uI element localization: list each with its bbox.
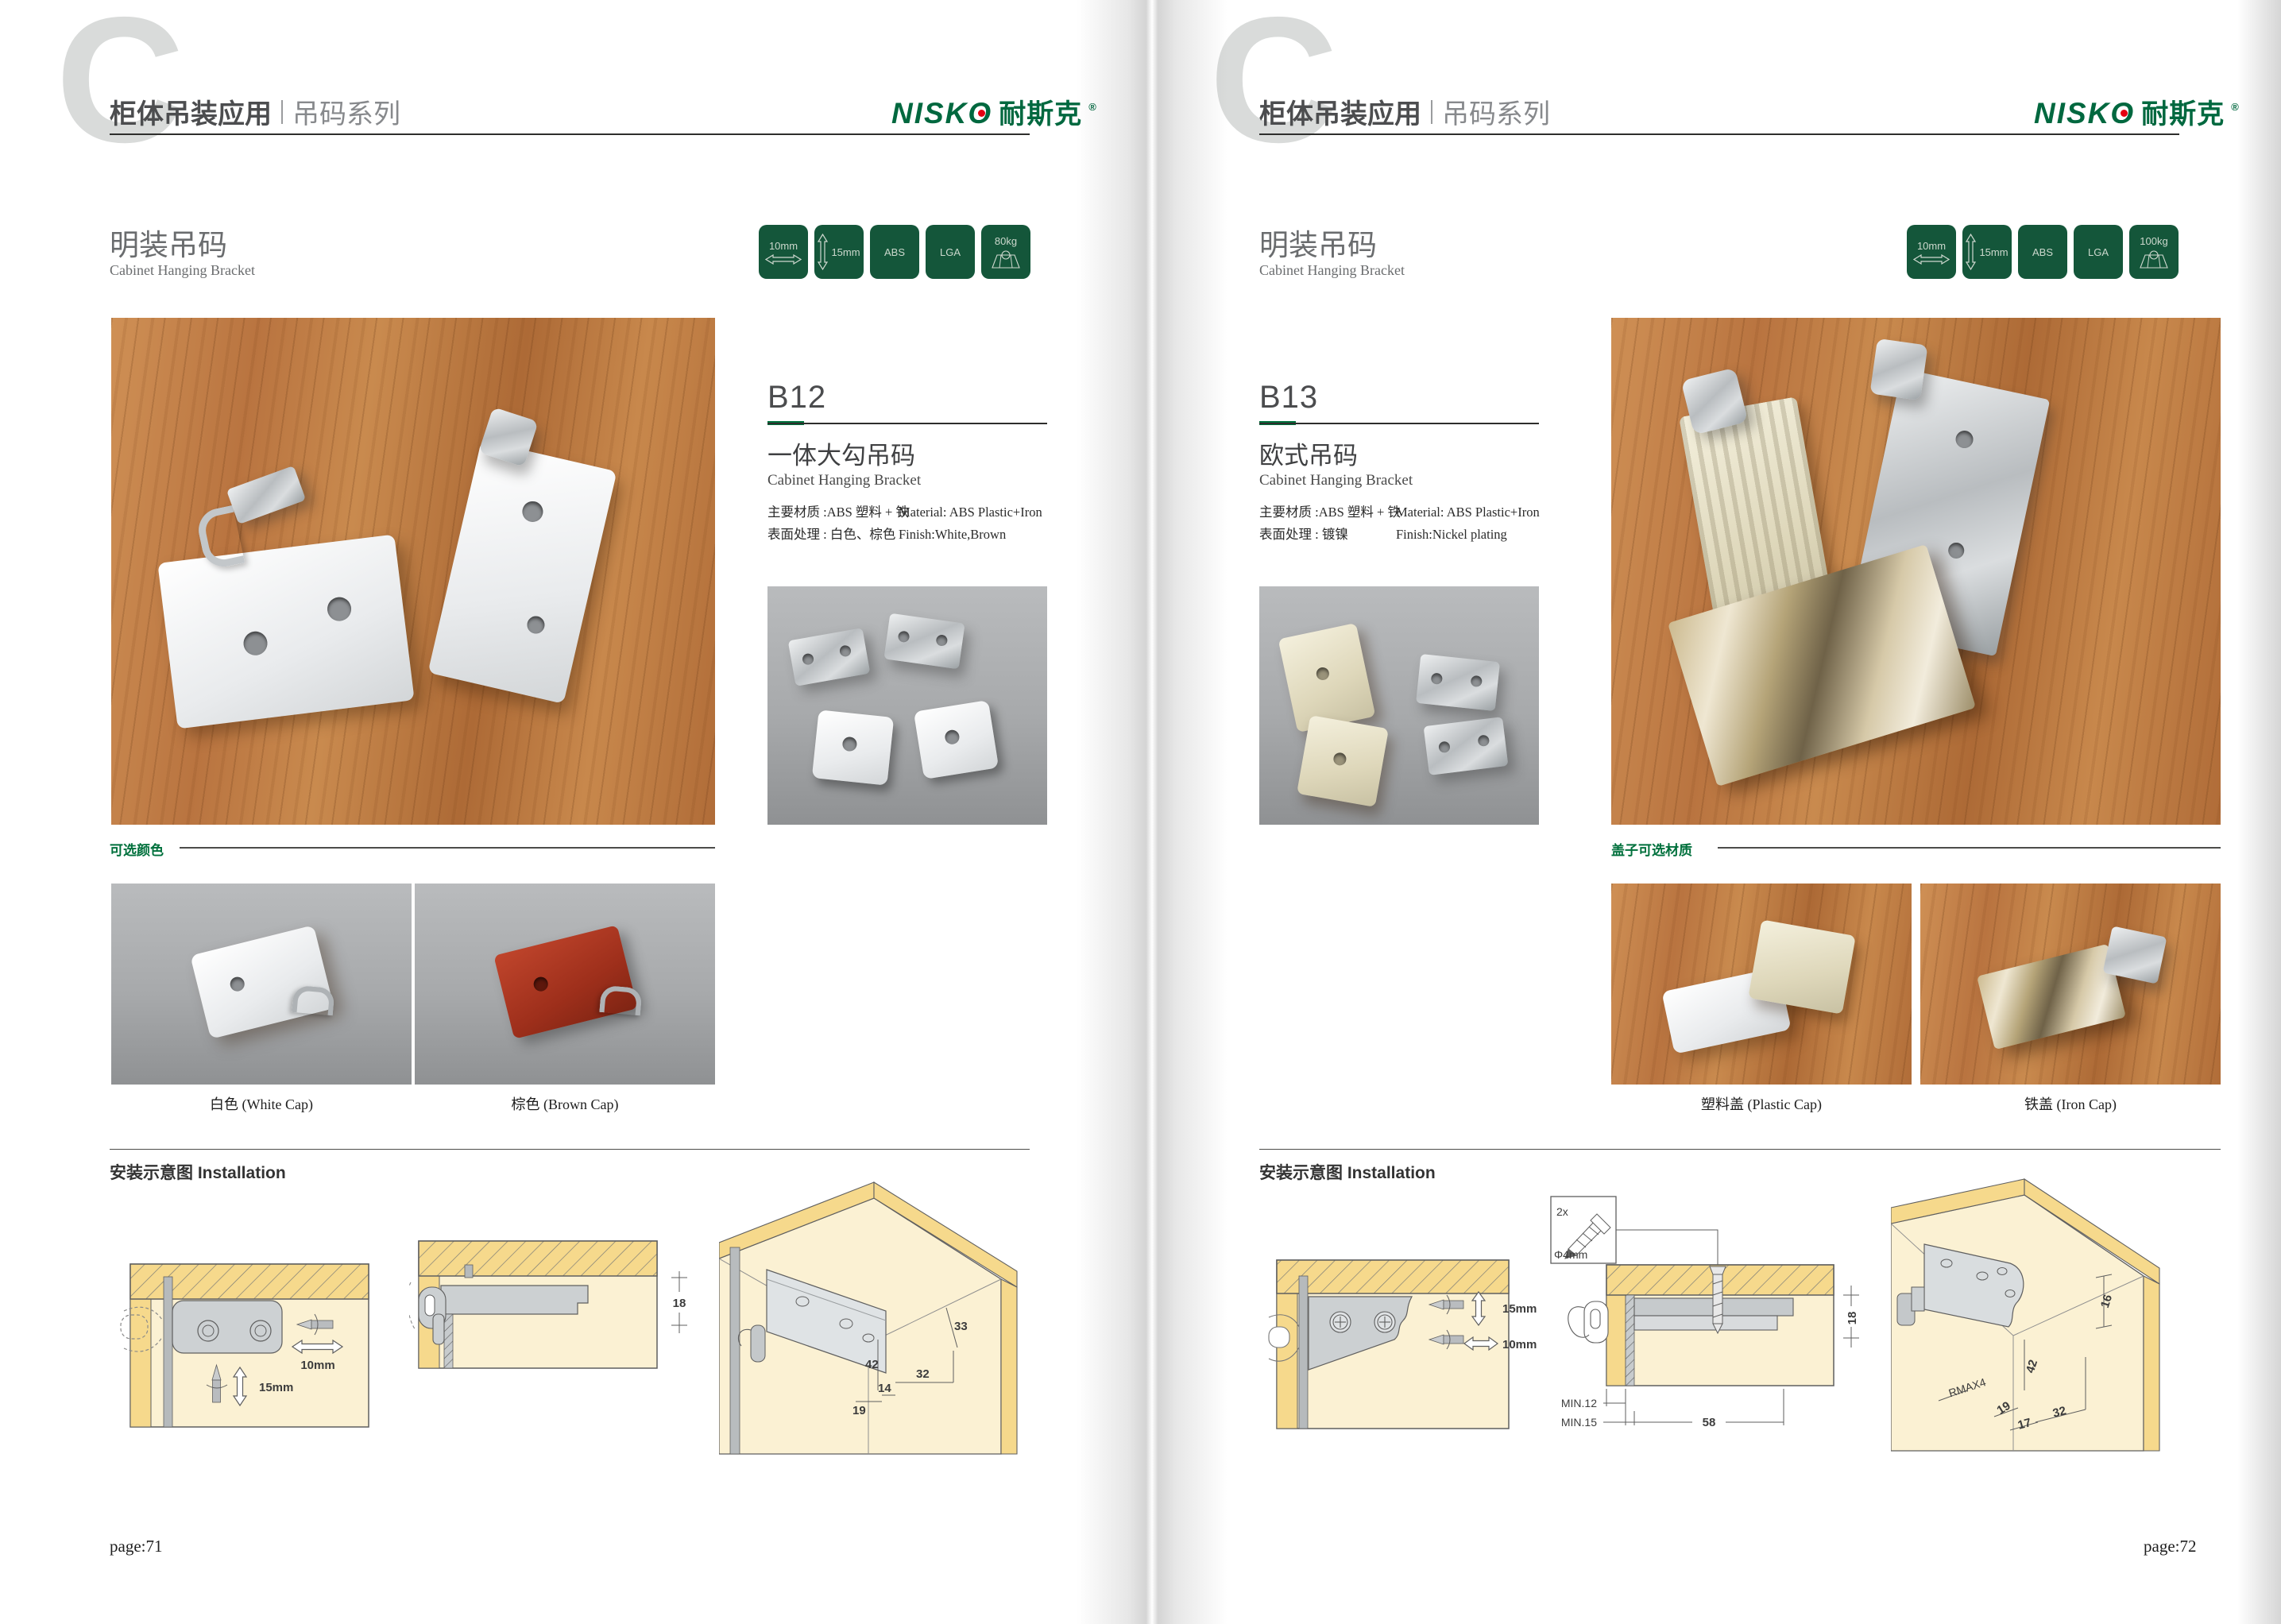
- brand-logo: NISKO 耐斯克 ®: [891, 92, 1096, 131]
- brand-logo-text: NISKO: [891, 97, 992, 130]
- product-spec-finish-cn: 表面处理 : 镀镍: [1259, 523, 1348, 546]
- option-photo-white: [111, 884, 412, 1085]
- badge-width-label: 10mm: [769, 240, 798, 252]
- page-number: page:72: [2144, 1537, 2196, 1556]
- options-label: 可选颜色: [110, 839, 164, 859]
- badge-height: 15mm: [814, 225, 864, 279]
- installation-label: 安装示意图 Installation: [110, 1160, 286, 1184]
- options-rule: [180, 847, 715, 849]
- dim-label: 15mm: [259, 1381, 293, 1394]
- spec-badge-row: 10mm 15mm ABS LGA 100kg: [1907, 225, 2179, 279]
- header-subtitle: 吊码系列: [1442, 92, 1550, 131]
- spec-badge-row: 10mm 15mm ABS LGA 80kg: [759, 225, 1030, 279]
- product-rule: [767, 421, 1047, 425]
- badge-material-label: ABS: [2032, 246, 2053, 258]
- screw-qty-label: 2x: [1556, 1205, 1568, 1218]
- product-rule: [1259, 421, 1539, 425]
- iron-cap-box: [1977, 944, 2126, 1050]
- page-number: page:71: [110, 1537, 162, 1556]
- brand-logo-text: NISKO: [2034, 97, 2135, 130]
- dim-label: 10mm: [1502, 1338, 1537, 1351]
- width-arrow-icon: [1913, 254, 1950, 265]
- option-caption: 铁盖 (Iron Cap): [1920, 1093, 2221, 1114]
- height-arrow-icon: [1966, 234, 1976, 270]
- installation-rule: [110, 1149, 1030, 1150]
- installation-diagram-1: 15mm 10mm: [1267, 1238, 1561, 1440]
- wall-rail: [730, 1247, 740, 1454]
- plastic-bracket: [1297, 715, 1389, 807]
- dim-label: MIN.12: [1561, 1397, 1597, 1409]
- page-header-title: 柜体吊装应用 吊码系列: [110, 92, 400, 131]
- product-spec-finish-en: Finish:White,Brown: [899, 523, 1006, 546]
- section-title-en: Cabinet Hanging Bracket: [110, 262, 255, 279]
- rail-lower: [1634, 1316, 1777, 1330]
- badge-certification: LGA: [2074, 225, 2123, 279]
- wall-rail: [1299, 1276, 1308, 1429]
- screw-diameter-label: Φ4mm: [1554, 1248, 1587, 1261]
- page-right: C 柜体吊装应用 吊码系列 NISKO 耐斯克 ® 明装吊码 Cabinet H…: [1140, 0, 2281, 1624]
- product-piece-bracket-standing: [428, 440, 617, 704]
- book-gutter-shadow: [1077, 0, 1227, 1624]
- header-rule: [110, 133, 1030, 135]
- installation-diagram-3: 16 42 RMAX4 19 17 32: [1891, 1174, 2233, 1472]
- white-cap-bracket: [190, 925, 334, 1038]
- brand-logo-latin: NISKO: [2034, 97, 2135, 130]
- section-title-en: Cabinet Hanging Bracket: [1259, 262, 1405, 279]
- dim-label: 18: [1846, 1312, 1859, 1325]
- badge-material-label: ABS: [884, 246, 905, 258]
- hook-bracket: [914, 700, 999, 779]
- rail-plate: [1416, 654, 1500, 711]
- page-edge-shadow: [2237, 0, 2281, 1624]
- product-spec-material-cn: 主要材质 :ABS 塑料 + 铁: [1259, 501, 1401, 524]
- rail-bar: [441, 1286, 588, 1314]
- badge-width-label: 10mm: [1917, 240, 1946, 252]
- product-code: B12: [767, 380, 826, 416]
- badge-load-label: 80kg: [995, 235, 1017, 247]
- dim-label: 32: [916, 1367, 930, 1381]
- brand-logo-cn: 耐斯克: [999, 92, 1082, 131]
- wall-rail: [164, 1277, 172, 1427]
- header-rule: [1259, 133, 2179, 135]
- page-header-title: 柜体吊装应用 吊码系列: [1259, 92, 1550, 131]
- product-spec-material-cn: 主要材质 :ABS 塑料 + 铁: [767, 501, 909, 524]
- badge-load-label: 100kg: [2140, 235, 2167, 247]
- installation-rule: [1259, 1149, 2221, 1150]
- options-label: 盖子可选材质: [1611, 839, 1692, 859]
- badge-material: ABS: [2018, 225, 2067, 279]
- badge-width: 10mm: [1907, 225, 1956, 279]
- catalog-spread: C 柜体吊装应用 吊码系列 NISKO 耐斯克 ® 明装吊码 Cabinet H…: [0, 0, 2281, 1624]
- badge-certification-label: LGA: [2088, 246, 2109, 258]
- metal-clip-piece: [226, 466, 306, 524]
- installation-diagram-1: 10mm 15mm: [119, 1235, 389, 1438]
- detail-photo: [1259, 586, 1539, 825]
- header-divider: [1431, 100, 1432, 124]
- main-product-photo: [111, 318, 715, 825]
- badge-load: 100kg: [2129, 225, 2179, 279]
- detail-photo: [767, 586, 1047, 825]
- header-subtitle: 吊码系列: [292, 92, 400, 131]
- metal-hook-icon: [599, 985, 643, 1016]
- product-code: B13: [1259, 380, 1318, 416]
- dim-label: 14: [878, 1382, 891, 1395]
- product-spec-finish-en: Finish:Nickel plating: [1396, 523, 1507, 546]
- product-name-en: Cabinet Hanging Bracket: [767, 472, 921, 489]
- installation-diagram-3: 33 42 32 19 14: [719, 1174, 1073, 1504]
- option-photo-iron: [1920, 884, 2221, 1085]
- header-divider: [281, 100, 283, 124]
- dim-label: 15mm: [1502, 1302, 1537, 1316]
- screw-callout-box: 2x Φ4mm: [1551, 1197, 1616, 1263]
- product-rule-line: [767, 423, 1047, 424]
- dim-label: 42: [865, 1358, 879, 1371]
- brown-cap-bracket: [493, 925, 637, 1038]
- brand-logo-cn: 耐斯克: [2141, 92, 2225, 131]
- option-caption: 塑料盖 (Plastic Cap): [1611, 1093, 1912, 1114]
- brand-logo-latin: NISKO: [891, 97, 992, 130]
- badge-certification: LGA: [926, 225, 975, 279]
- section-title-cn: 明装吊码: [1259, 221, 1377, 264]
- dim-label: 10mm: [300, 1359, 334, 1372]
- rail-plate: [788, 628, 871, 686]
- chapter-letter-watermark: C: [56, 0, 180, 169]
- header-title-cn: 柜体吊装应用: [110, 92, 272, 131]
- badge-certification-label: LGA: [940, 246, 961, 258]
- rail-plate: [883, 613, 965, 670]
- product-spec-finish-cn: 表面处理 : 白色、棕色: [767, 523, 895, 546]
- brand-logo: NISKO 耐斯克 ®: [2034, 92, 2239, 131]
- height-arrow-icon: [818, 234, 828, 270]
- bottom-dim-lines: [1603, 1389, 1784, 1425]
- product-name-en: Cabinet Hanging Bracket: [1259, 472, 1413, 489]
- option-photo-brown: [415, 884, 715, 1085]
- dim-label: MIN.15: [1561, 1416, 1597, 1429]
- options-rule: [1718, 847, 2221, 849]
- product-piece-bracket-flat: [157, 535, 414, 729]
- badge-height: 15mm: [1962, 225, 2012, 279]
- metal-hook-icon: [1869, 338, 1927, 400]
- load-cabinet-icon: [989, 249, 1023, 269]
- badge-height-label: 15mm: [831, 246, 860, 258]
- installation-label: 安装示意图 Installation: [1259, 1160, 1436, 1184]
- load-cabinet-icon: [2137, 249, 2171, 269]
- option-caption: 白色 (White Cap): [111, 1093, 412, 1114]
- hook-body: [1568, 1301, 1608, 1343]
- header-title-cn: 柜体吊装应用: [1259, 92, 1421, 131]
- product-name-cn: 一体大勾吊码: [767, 435, 915, 471]
- badge-material: ABS: [870, 225, 919, 279]
- plastic-bracket: [1278, 623, 1376, 733]
- callout-line: [1616, 1230, 1718, 1270]
- product-spec-material-en: Material: ABS Plastic+Iron: [899, 501, 1042, 524]
- dim-label: 33: [954, 1320, 968, 1333]
- dim-label: 58: [1703, 1416, 1716, 1429]
- badge-load: 80kg: [981, 225, 1030, 279]
- plastic-bracket: [1748, 919, 1856, 1014]
- hook-bracket: [812, 710, 894, 785]
- product-rule-line: [1259, 423, 1539, 424]
- installation-diagram-2: 2x Φ4mm: [1533, 1190, 1875, 1440]
- product-name-cn: 欧式吊码: [1259, 435, 1358, 471]
- section-title-cn: 明装吊码: [110, 221, 227, 264]
- width-arrow-icon: [765, 254, 802, 265]
- bracket-body: [172, 1301, 282, 1353]
- page-left: C 柜体吊装应用 吊码系列 NISKO 耐斯克 ® 明装吊码 Cabinet H…: [0, 0, 1140, 1624]
- dim-label: 18: [673, 1297, 686, 1310]
- main-product-photo: [1611, 318, 2221, 825]
- dim-label: 19: [852, 1404, 866, 1417]
- badge-width: 10mm: [759, 225, 808, 279]
- chapter-letter-watermark: C: [1209, 0, 1334, 169]
- option-photo-plastic: [1611, 884, 1912, 1085]
- badge-height-label: 15mm: [1979, 246, 2008, 258]
- option-caption: 棕色 (Brown Cap): [415, 1093, 715, 1114]
- installation-diagram-2: 18: [409, 1232, 703, 1378]
- rail-plate: [1424, 717, 1509, 775]
- product-spec-material-en: Material: ABS Plastic+Iron: [1396, 501, 1540, 524]
